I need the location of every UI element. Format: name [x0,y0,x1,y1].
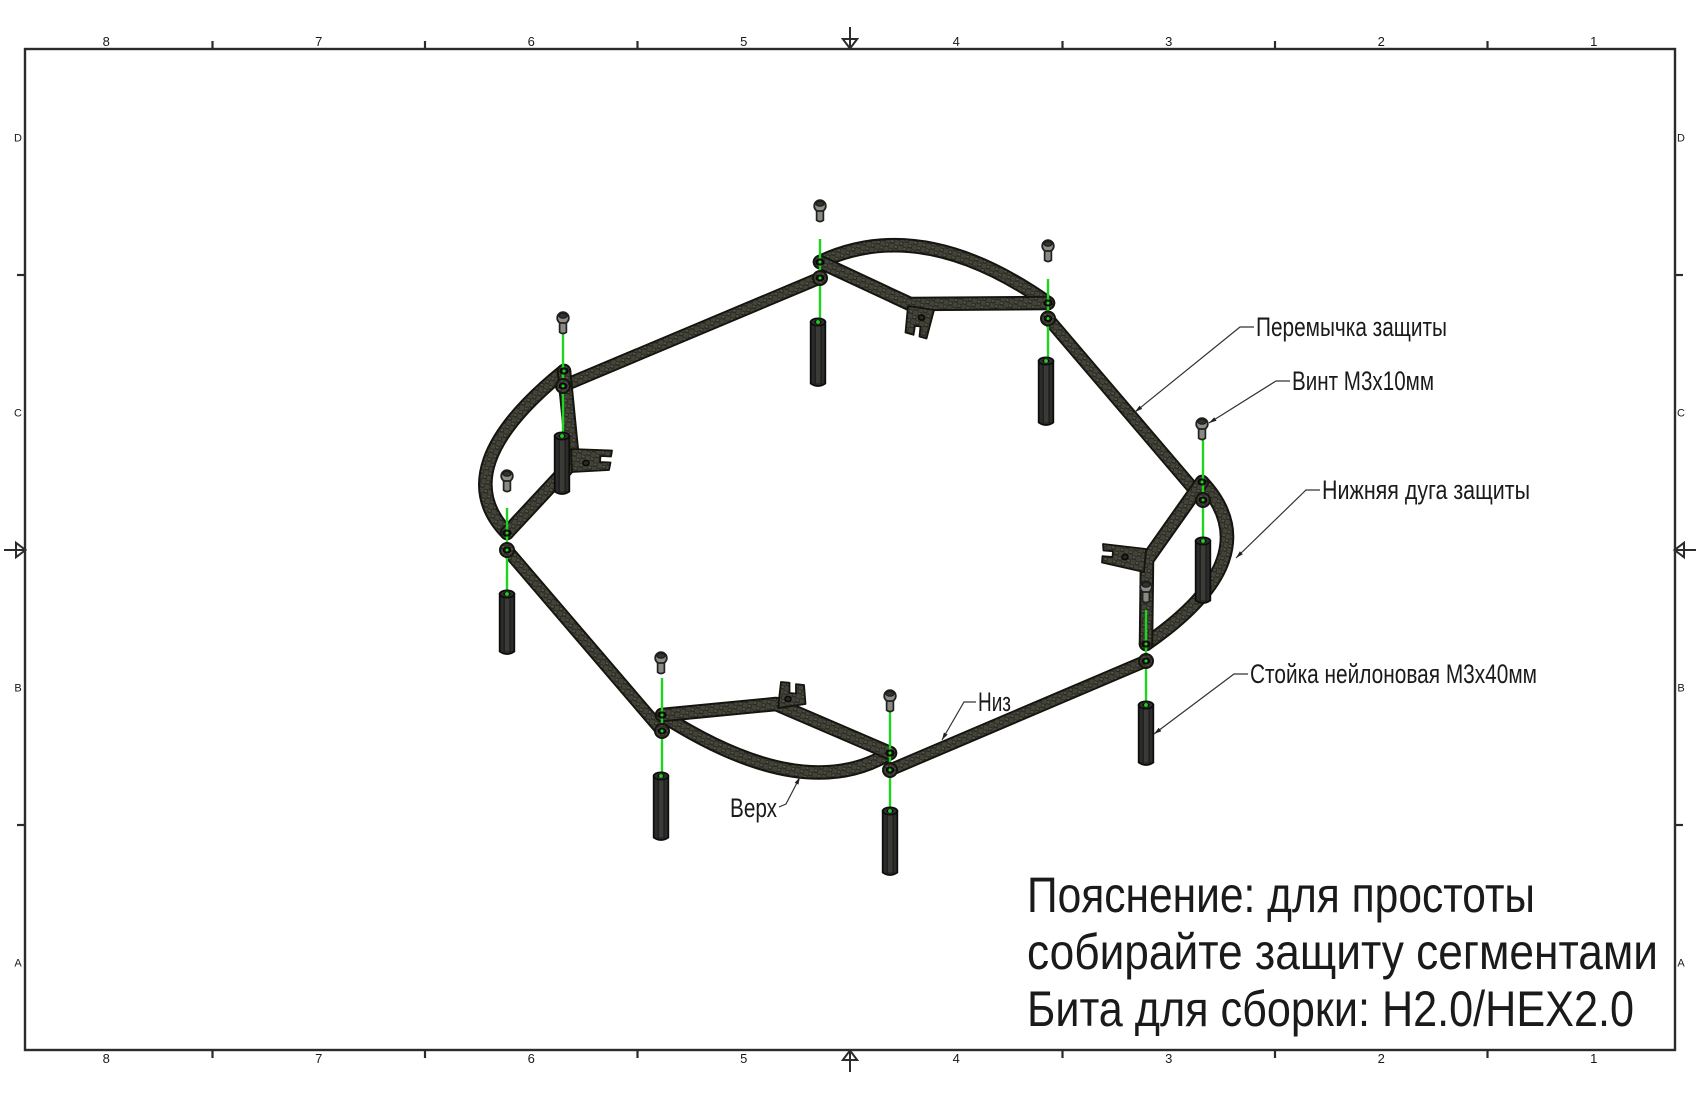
svg-text:6: 6 [528,34,535,49]
svg-text:D: D [1677,133,1685,145]
svg-text:8: 8 [103,34,110,49]
svg-text:2: 2 [1378,1051,1385,1066]
svg-text:8: 8 [103,1051,110,1066]
svg-text:A: A [1677,958,1685,970]
svg-text:5: 5 [740,1051,747,1066]
svg-text:B: B [1677,683,1684,695]
svg-text:7: 7 [315,34,322,49]
svg-text:C: C [14,408,22,420]
svg-text:A: A [14,958,22,970]
svg-text:Верх: Верх [730,793,777,823]
svg-text:1: 1 [1590,1051,1597,1066]
svg-text:7: 7 [315,1051,322,1066]
svg-text:3: 3 [1165,1051,1172,1066]
svg-text:Стойка нейлоновая M3x40мм: Стойка нейлоновая M3x40мм [1250,659,1537,689]
svg-text:D: D [14,133,22,145]
svg-text:Низ: Низ [978,687,1011,717]
svg-text:собирайте защиту сегментами: собирайте защиту сегментами [1027,924,1658,980]
svg-text:6: 6 [528,1051,535,1066]
svg-text:2: 2 [1378,34,1385,49]
svg-text:3: 3 [1165,34,1172,49]
svg-text:B: B [14,683,21,695]
svg-text:1: 1 [1590,34,1597,49]
svg-text:5: 5 [740,34,747,49]
svg-text:Пояснение: для простоты: Пояснение: для простоты [1027,867,1535,923]
svg-text:Перемычка защиты: Перемычка защиты [1256,312,1447,342]
svg-text:Бита для сборки: H2.0/HEX2.0: Бита для сборки: H2.0/HEX2.0 [1027,981,1634,1037]
svg-text:Винт M3x10мм: Винт M3x10мм [1292,366,1434,396]
svg-text:C: C [1677,408,1685,420]
svg-text:Нижняя дуга защиты: Нижняя дуга защиты [1322,475,1530,505]
svg-text:4: 4 [953,34,960,49]
svg-text:4: 4 [953,1051,960,1066]
